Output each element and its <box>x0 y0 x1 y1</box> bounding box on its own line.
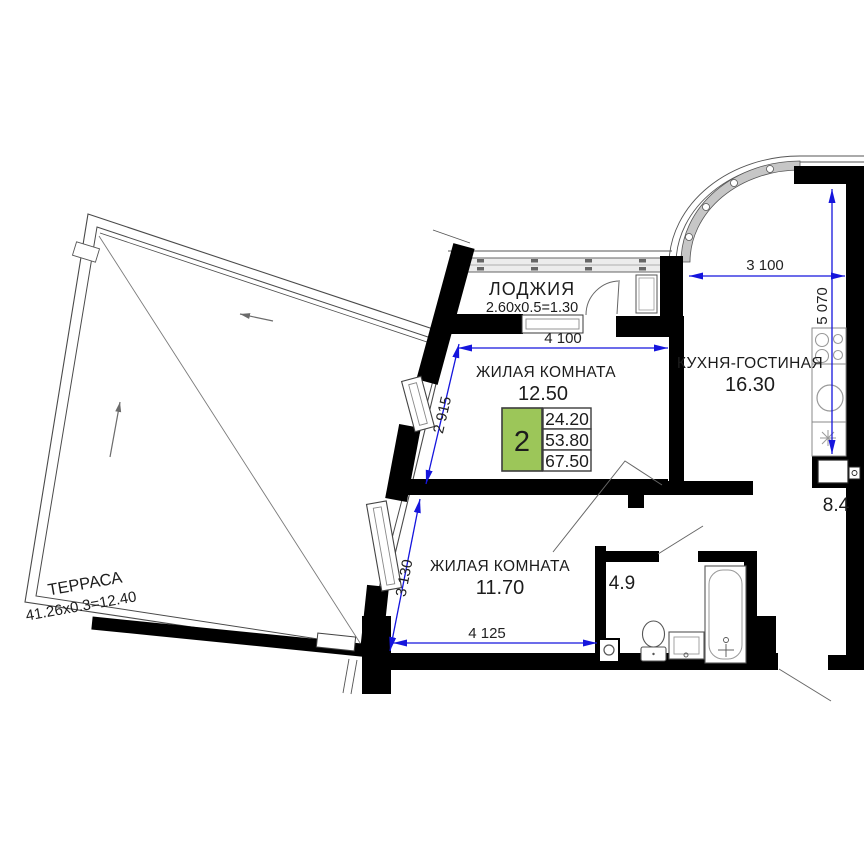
mullion-node-icon <box>767 166 774 173</box>
living1-area-label: 12.50 <box>518 383 568 405</box>
dim-label: 4 125 <box>468 625 506 642</box>
terrace-edge-below <box>343 659 349 693</box>
dim-label: 2 915 <box>430 395 455 435</box>
living2-name-label: ЖИЛАЯ КОМНАТА <box>430 558 570 575</box>
wall-door-post <box>628 495 644 508</box>
wall-top <box>794 166 864 184</box>
terrace-rail-line <box>100 233 439 346</box>
wall-living1-living2 <box>396 479 668 495</box>
dimension-kitchen-width: 3 100 <box>689 257 845 276</box>
window-1 <box>402 376 435 431</box>
wall-right <box>846 166 864 657</box>
loggia-formula-label: 2.60x0.5=1.30 <box>486 300 578 316</box>
appliance-box <box>818 460 848 483</box>
living2-area-label: 11.70 <box>476 577 525 599</box>
wall-loggia-sill-left <box>449 314 523 334</box>
wall-loggia-right <box>660 256 683 337</box>
terrace-corner-post <box>72 242 99 262</box>
dimension-living2-width: 4 125 <box>393 625 597 643</box>
wall-kitchen-tee <box>660 481 753 495</box>
terrace-diagonal-line <box>99 236 362 646</box>
kitchen-area-label: 16.30 <box>725 374 775 396</box>
loggia-name-label: ЛОДЖИЯ <box>489 279 575 299</box>
leader-bath-door <box>658 526 703 554</box>
bathroom-area-label: 4.9 <box>609 573 635 594</box>
balcony-door-leaf <box>617 282 619 314</box>
terrace-arrow-up-icon <box>110 402 120 457</box>
boiler-star-icon <box>820 430 836 446</box>
toilet-button <box>652 653 654 655</box>
leader-entrance-door <box>779 669 831 701</box>
wall-shaft <box>744 616 776 657</box>
hallway-area-label: 8.4 <box>823 495 850 516</box>
summary-apartment-area: 53.80 <box>545 430 589 450</box>
loggia-fixtures <box>636 275 657 313</box>
terrace-arrow-left-icon <box>240 314 273 321</box>
summary-rooms-count: 2 <box>514 426 530 458</box>
dim-label: 4 100 <box>544 330 582 347</box>
loggia-window-strip <box>459 258 661 272</box>
wall-bath-top-left <box>595 551 659 562</box>
outer-face-line <box>433 230 470 243</box>
mullion-node-icon <box>731 180 738 187</box>
kitchen-name-label: КУХНЯ-ГОСТИНАЯ <box>677 355 823 372</box>
mullion-node-icon <box>703 204 710 211</box>
toilet-bowl-icon <box>643 621 665 647</box>
washing-machine-drum <box>604 645 614 655</box>
curved-window-band <box>681 161 800 262</box>
summary-total-area: 67.50 <box>545 451 589 471</box>
summary-living-area: 24.20 <box>545 409 589 429</box>
floor-plan-svg: ТЕРРАСА 41.26x0.3=12.40 <box>0 0 864 862</box>
wall-living1-kitchen <box>669 330 684 483</box>
dim-label: 5 070 <box>814 287 831 325</box>
balcony-door-arc <box>586 281 620 315</box>
summary-table: 2 24.20 53.80 67.50 <box>502 408 591 471</box>
dim-label: 3 100 <box>746 257 784 274</box>
terrace-edge-below2 <box>351 660 357 694</box>
mullion-node-icon <box>686 234 693 241</box>
appliance-icon <box>849 467 860 479</box>
wall-bottom-right-stub <box>828 655 864 670</box>
living1-name-label: ЖИЛАЯ КОМНАТА <box>476 364 616 381</box>
floor-plan-page: ТЕРРАСА 41.26x0.3=12.40 <box>0 0 864 862</box>
bathtub-icon <box>705 566 746 663</box>
wall-bath-top-right <box>698 551 752 562</box>
leader-room-doors <box>553 461 662 552</box>
